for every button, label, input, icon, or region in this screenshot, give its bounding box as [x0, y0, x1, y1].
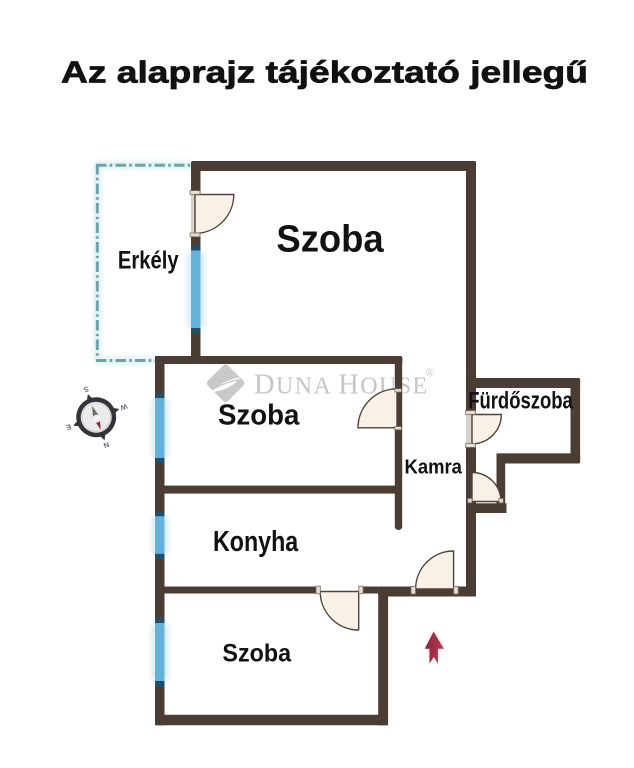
- svg-text:S: S: [82, 384, 90, 394]
- svg-text:Erkély: Erkély: [118, 247, 179, 275]
- svg-text:N: N: [102, 440, 110, 450]
- svg-text:®: ®: [426, 368, 435, 380]
- svg-text:W: W: [118, 402, 129, 413]
- svg-text:Fürdőszoba: Fürdőszoba: [468, 388, 573, 415]
- svg-text:Szoba: Szoba: [218, 400, 300, 432]
- svg-text:DUNA HOUSE: DUNA HOUSE: [254, 370, 429, 401]
- svg-text:Szoba: Szoba: [276, 219, 384, 261]
- svg-text:Kamra: Kamra: [405, 455, 463, 478]
- svg-text:E: E: [65, 422, 73, 432]
- svg-text:Szoba: Szoba: [222, 639, 292, 667]
- svg-text:Konyha: Konyha: [213, 526, 299, 558]
- svg-text:Az alaprajz tájékoztató jelleg: Az alaprajz tájékoztató jellegű: [61, 56, 588, 89]
